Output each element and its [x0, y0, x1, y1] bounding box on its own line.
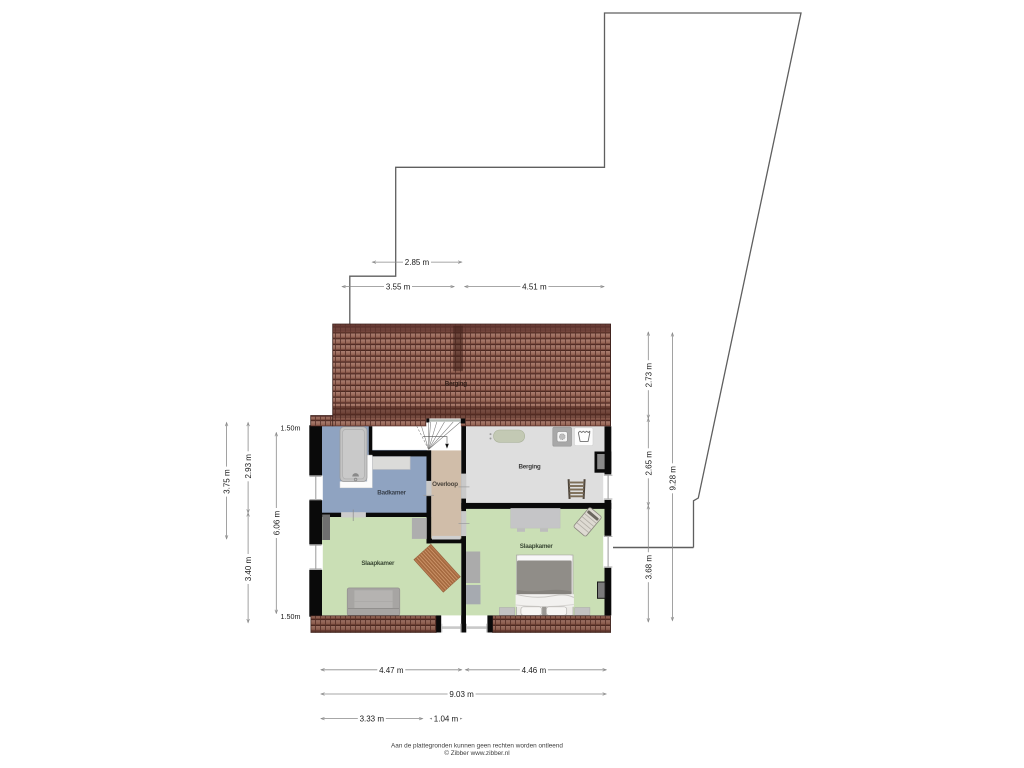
svg-text:1.50m: 1.50m	[281, 612, 301, 621]
svg-text:3.75 m: 3.75 m	[223, 469, 232, 494]
svg-text:Aan de plattegronden kunnen ge: Aan de plattegronden kunnen geen rechten…	[391, 743, 563, 750]
svg-text:2.93 m: 2.93 m	[244, 454, 253, 479]
svg-text:4.46 m: 4.46 m	[522, 666, 547, 675]
svg-text:6.06 m: 6.06 m	[272, 510, 281, 535]
svg-text:© Zibber www.zibber.nl: © Zibber www.zibber.nl	[444, 749, 509, 757]
svg-text:3.33 m: 3.33 m	[360, 715, 385, 724]
svg-text:4.51 m: 4.51 m	[522, 283, 547, 292]
svg-text:Berging: Berging	[445, 380, 467, 387]
svg-text:Slaapkamer: Slaapkamer	[361, 560, 395, 567]
svg-text:Overloop: Overloop	[432, 481, 458, 488]
svg-text:1.50m: 1.50m	[281, 424, 301, 433]
svg-text:Slaapkamer: Slaapkamer	[520, 543, 554, 550]
svg-text:Berging: Berging	[518, 464, 540, 471]
svg-text:2.65 m: 2.65 m	[644, 451, 653, 476]
svg-text:4.47 m: 4.47 m	[379, 666, 404, 675]
svg-text:3.40 m: 3.40 m	[244, 556, 253, 581]
svg-text:9.28 m: 9.28 m	[668, 466, 677, 491]
svg-text:3.68 m: 3.68 m	[644, 555, 653, 580]
svg-text:2.73 m: 2.73 m	[644, 363, 653, 388]
svg-text:9.03 m: 9.03 m	[449, 690, 474, 699]
svg-text:Badkamer: Badkamer	[377, 490, 406, 497]
svg-text:3.55 m: 3.55 m	[386, 283, 411, 292]
svg-text:1.04 m: 1.04 m	[434, 715, 459, 724]
svg-text:2.85 m: 2.85 m	[405, 258, 430, 267]
